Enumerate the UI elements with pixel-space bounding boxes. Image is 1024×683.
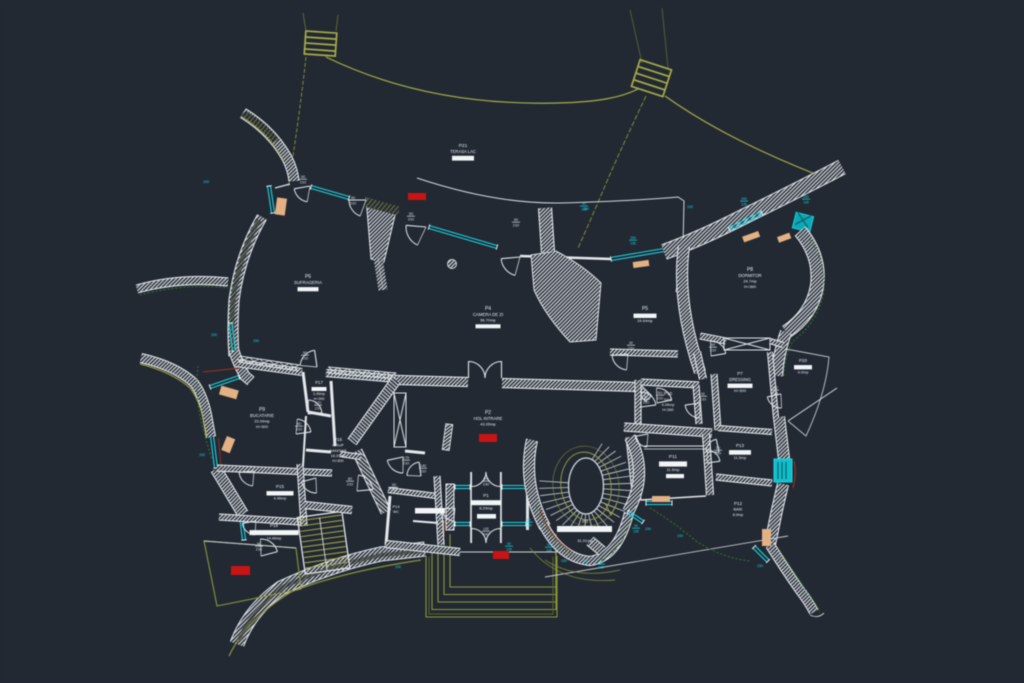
svg-text:BAIE: BAIE	[733, 507, 742, 512]
svg-text:90: 90	[507, 542, 511, 546]
svg-text:4.46mp: 4.46mp	[274, 497, 287, 501]
svg-text:P13: P13	[736, 443, 745, 448]
svg-text:240: 240	[483, 532, 489, 536]
svg-text:135: 135	[741, 202, 747, 206]
svg-text:SUFRAGERIA: SUFRAGERIA	[294, 280, 322, 285]
svg-text:H=360: H=360	[662, 408, 673, 412]
svg-text:210: 210	[302, 356, 308, 360]
svg-text:150: 150	[687, 205, 693, 209]
svg-text:210: 210	[315, 406, 321, 410]
svg-text:DRESSING: DRESSING	[729, 377, 751, 382]
svg-text:210: 210	[350, 201, 356, 205]
svg-text:135: 135	[633, 529, 639, 533]
svg-text:90: 90	[297, 422, 301, 426]
svg-text:90: 90	[547, 543, 551, 547]
svg-text:150: 150	[630, 236, 636, 240]
svg-text:11.5mp: 11.5mp	[734, 456, 746, 460]
svg-text:90: 90	[441, 514, 445, 518]
svg-text:170: 170	[315, 401, 321, 405]
svg-text:90: 90	[351, 196, 355, 200]
svg-text:H=360: H=360	[744, 284, 757, 289]
svg-text:P12: P12	[734, 501, 743, 506]
svg-text:135: 135	[803, 200, 809, 204]
svg-text:WC: WC	[393, 510, 399, 514]
svg-text:210: 210	[628, 346, 634, 350]
svg-text:90: 90	[409, 212, 413, 216]
svg-text:HOL INTRARE: HOL INTRARE	[474, 416, 503, 421]
svg-text:P11: P11	[669, 454, 678, 460]
svg-text:210: 210	[643, 400, 649, 404]
svg-text:8.29mp: 8.29mp	[479, 505, 493, 510]
svg-text:210: 210	[710, 348, 716, 352]
svg-text:US: US	[483, 477, 489, 481]
svg-text:210: 210	[403, 461, 409, 465]
svg-text:240: 240	[741, 197, 747, 201]
svg-text:150: 150	[395, 565, 401, 569]
svg-text:210: 210	[391, 488, 397, 492]
svg-text:90: 90	[599, 560, 603, 564]
svg-text:H=300: H=300	[256, 424, 269, 429]
svg-text:DORMITOR: DORMITOR	[738, 273, 761, 278]
svg-text:240: 240	[803, 195, 809, 199]
svg-text:240: 240	[483, 482, 489, 486]
svg-text:135: 135	[526, 523, 532, 527]
svg-text:210: 210	[347, 482, 353, 486]
svg-text:US: US	[483, 527, 489, 531]
svg-text:43.05mp: 43.05mp	[480, 422, 496, 427]
svg-text:P6: P6	[305, 274, 311, 280]
svg-text:14.46mp: 14.46mp	[267, 536, 282, 540]
svg-text:210: 210	[300, 180, 306, 184]
svg-text:210: 210	[440, 519, 446, 523]
svg-text:M: M	[644, 395, 647, 399]
svg-text:CAMERA DE ZI: CAMERA DE ZI	[473, 312, 503, 317]
svg-text:8.9mp: 8.9mp	[733, 513, 744, 517]
svg-text:140: 140	[420, 464, 426, 468]
svg-text:210: 210	[700, 397, 706, 401]
svg-text:210: 210	[513, 223, 519, 227]
svg-text:P1: P1	[483, 493, 489, 498]
svg-text:90: 90	[634, 524, 638, 528]
svg-text:31.91mp: 31.91mp	[577, 538, 593, 543]
svg-text:SANITAR: SANITAR	[329, 448, 346, 453]
svg-text:M: M	[701, 392, 704, 396]
svg-text:150: 150	[211, 333, 217, 337]
svg-text:90: 90	[257, 542, 261, 546]
svg-text:BUCATARIE: BUCATARIE	[250, 413, 274, 418]
svg-text:4.04mp: 4.04mp	[662, 403, 675, 407]
svg-text:150: 150	[253, 339, 259, 343]
svg-text:135: 135	[630, 241, 636, 245]
svg-text:90: 90	[711, 343, 715, 347]
svg-text:150: 150	[582, 559, 588, 563]
svg-text:P15: P15	[276, 484, 285, 489]
svg-text:90: 90	[303, 351, 307, 355]
svg-text:P17: P17	[315, 380, 323, 385]
svg-text:150: 150	[561, 559, 567, 563]
svg-text:210: 210	[715, 451, 721, 455]
svg-text:150: 150	[199, 453, 205, 457]
svg-text:3.45mp: 3.45mp	[313, 392, 325, 396]
svg-text:90: 90	[392, 483, 396, 487]
svg-text:90: 90	[301, 175, 305, 179]
svg-text:210: 210	[420, 469, 426, 473]
svg-text:P14: P14	[392, 504, 400, 509]
svg-text:80: 80	[348, 477, 352, 481]
svg-text:135: 135	[506, 547, 512, 551]
svg-text:P8: P8	[747, 267, 753, 273]
svg-text:P2: P2	[485, 410, 491, 416]
svg-text:P20: P20	[799, 358, 808, 363]
svg-text:M: M	[629, 341, 632, 345]
svg-text:90: 90	[716, 446, 720, 450]
svg-text:135: 135	[581, 207, 587, 211]
svg-text:P9: P9	[259, 407, 265, 413]
svg-text:11.9mp: 11.9mp	[666, 467, 680, 472]
svg-text:H=300: H=300	[734, 388, 747, 393]
svg-text:150: 150	[677, 534, 683, 538]
svg-text:TERASA LAC: TERASA LAC	[450, 149, 476, 154]
svg-text:P5: P5	[642, 306, 648, 312]
svg-text:4.0mp: 4.0mp	[798, 370, 809, 375]
svg-text:175: 175	[403, 456, 409, 460]
svg-text:18.20mp: 18.20mp	[331, 454, 346, 458]
svg-text:150: 150	[645, 527, 651, 531]
svg-text:P18: P18	[270, 523, 279, 528]
svg-text:56.70mp: 56.70mp	[480, 318, 496, 323]
svg-text:150: 150	[757, 564, 763, 568]
svg-text:P10: P10	[664, 391, 673, 396]
svg-text:P7: P7	[737, 371, 743, 376]
svg-text:210: 210	[296, 427, 302, 431]
svg-text:210: 210	[256, 547, 262, 551]
svg-text:135: 135	[598, 565, 604, 569]
svg-text:24.64mp: 24.64mp	[637, 318, 653, 323]
svg-text:90: 90	[527, 518, 531, 522]
svg-text:90: 90	[514, 218, 518, 222]
svg-text:210: 210	[657, 396, 663, 400]
svg-text:135: 135	[772, 391, 778, 395]
svg-text:150: 150	[203, 180, 209, 184]
svg-text:H=300: H=300	[332, 459, 343, 463]
svg-text:90: 90	[582, 202, 586, 206]
svg-text:112: 112	[772, 386, 778, 390]
svg-text:210: 210	[408, 217, 414, 221]
svg-text:P16: P16	[334, 437, 343, 442]
svg-text:SAS: SAS	[664, 397, 672, 402]
svg-text:P3: P3	[582, 519, 588, 524]
svg-text:SU: SU	[657, 391, 663, 395]
svg-text:P4: P4	[485, 306, 491, 312]
svg-text:135: 135	[546, 548, 552, 552]
